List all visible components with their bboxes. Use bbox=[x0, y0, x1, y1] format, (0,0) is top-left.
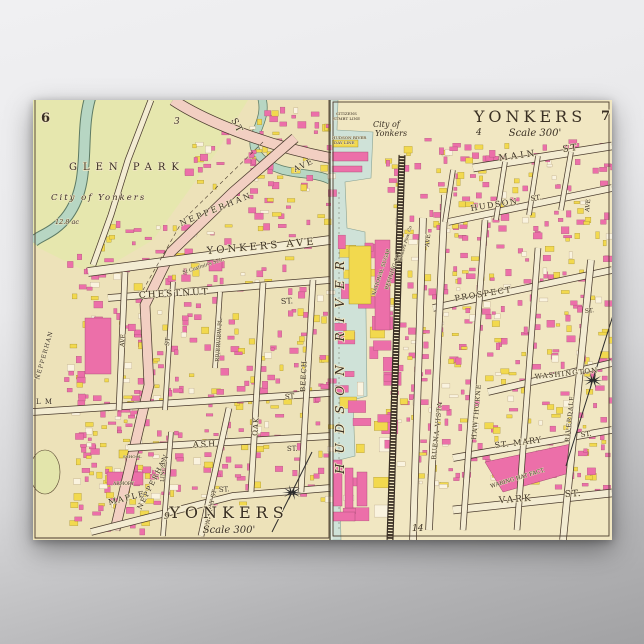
label-page-6: 6 bbox=[41, 111, 50, 126]
label-scale-left: Scale 300' bbox=[203, 525, 256, 536]
label-ash-st-2: ST. bbox=[287, 445, 298, 453]
label-acreage: 12.8 ac bbox=[55, 218, 79, 226]
label-city-of-yonkers-right-1: City of bbox=[373, 120, 402, 129]
label-glen-park: GLEN PARK bbox=[69, 162, 185, 173]
label-elm-st: L M bbox=[36, 398, 53, 406]
label-armory: ARMORY bbox=[112, 481, 135, 487]
label-city-of-yonkers-left: City of Yonkers bbox=[51, 193, 146, 203]
label-hudson-river: HUDSON RIVER bbox=[333, 251, 347, 475]
label-yonkers-title-right: YONKERS bbox=[473, 107, 586, 126]
label-st-mary-st-2: ST. bbox=[580, 430, 592, 439]
product-background: 6GLEN PARKCity of Yonkers12.8 ac3STNEPPE… bbox=[0, 0, 644, 644]
label-day-line-2: DAY LINE bbox=[334, 140, 355, 145]
label-city-of-yonkers-right-2: Yonkers bbox=[375, 129, 407, 138]
label-maple-st-2: ST. bbox=[219, 485, 230, 494]
label-page-4: 4 bbox=[475, 128, 482, 138]
label-st-vert-mid: ST bbox=[164, 338, 172, 347]
label-oak-st: OAK bbox=[251, 417, 261, 437]
label-st-right-edge: ST. bbox=[584, 307, 594, 315]
label-page-14: 14 bbox=[412, 524, 424, 534]
label-yonkers-title-left: YONKERS bbox=[168, 503, 288, 522]
label-ash-st: ASH bbox=[192, 439, 218, 449]
label-page-9: 9 bbox=[164, 512, 170, 522]
label-school: SCHOOL bbox=[123, 454, 142, 459]
label-ave-vert-left: AVE bbox=[119, 334, 127, 348]
label-chestnut-st-2: ST. bbox=[281, 296, 294, 306]
label-ave-warburton: AVE bbox=[424, 234, 432, 248]
label-beech-st: BEECH bbox=[299, 360, 309, 392]
label-scale-right: Scale 300' bbox=[509, 128, 562, 139]
label-vark-st-2: ST. bbox=[565, 489, 582, 500]
yonkers-atlas-map: 6GLEN PARKCity of Yonkers12.8 ac3STNEPPE… bbox=[33, 100, 612, 540]
map-poster: 6GLEN PARKCity of Yonkers12.8 ac3STNEPPE… bbox=[33, 100, 612, 540]
label-citizens-line-2: STMBT LINE bbox=[333, 116, 360, 121]
page-seam bbox=[329, 100, 332, 540]
label-hudson-st-2: ST. bbox=[530, 193, 542, 203]
label-elm-st-2: ST bbox=[285, 392, 295, 401]
label-page-7: 7 bbox=[601, 109, 610, 124]
label-block-3: 3 bbox=[174, 117, 180, 127]
label-ave-right-edge: AVE bbox=[584, 199, 592, 213]
